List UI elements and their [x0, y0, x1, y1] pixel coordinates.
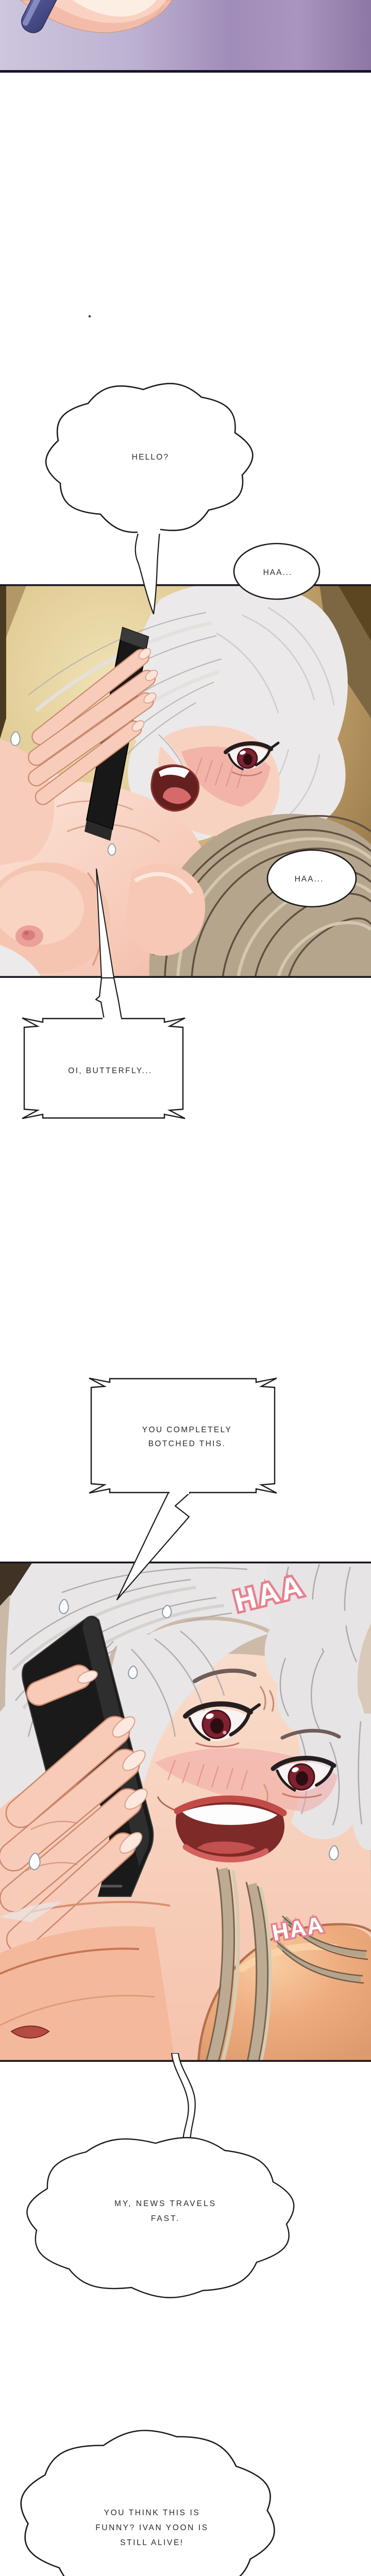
svg-text:BOTCHED THIS.: BOTCHED THIS. — [148, 1439, 226, 1448]
svg-text:MY, NEWS TRAVELS: MY, NEWS TRAVELS — [114, 2199, 216, 2208]
svg-text:HAA...: HAA... — [263, 568, 293, 577]
svg-text:YOU THINK THIS IS: YOU THINK THIS IS — [104, 2509, 200, 2517]
svg-text:HELLO?: HELLO? — [132, 453, 170, 462]
svg-text:FAST.: FAST. — [151, 2214, 180, 2223]
svg-text:YOU COMPLETELY: YOU COMPLETELY — [142, 1426, 232, 1434]
svg-text:HAA...: HAA... — [295, 875, 324, 884]
svg-text:OI, BUTTERFLY...: OI, BUTTERFLY... — [68, 1066, 153, 1075]
svg-text:STILL ALIVE!: STILL ALIVE! — [120, 2538, 184, 2547]
svg-text:FUNNY? IVAN YOON IS: FUNNY? IVAN YOON IS — [95, 2523, 208, 2532]
